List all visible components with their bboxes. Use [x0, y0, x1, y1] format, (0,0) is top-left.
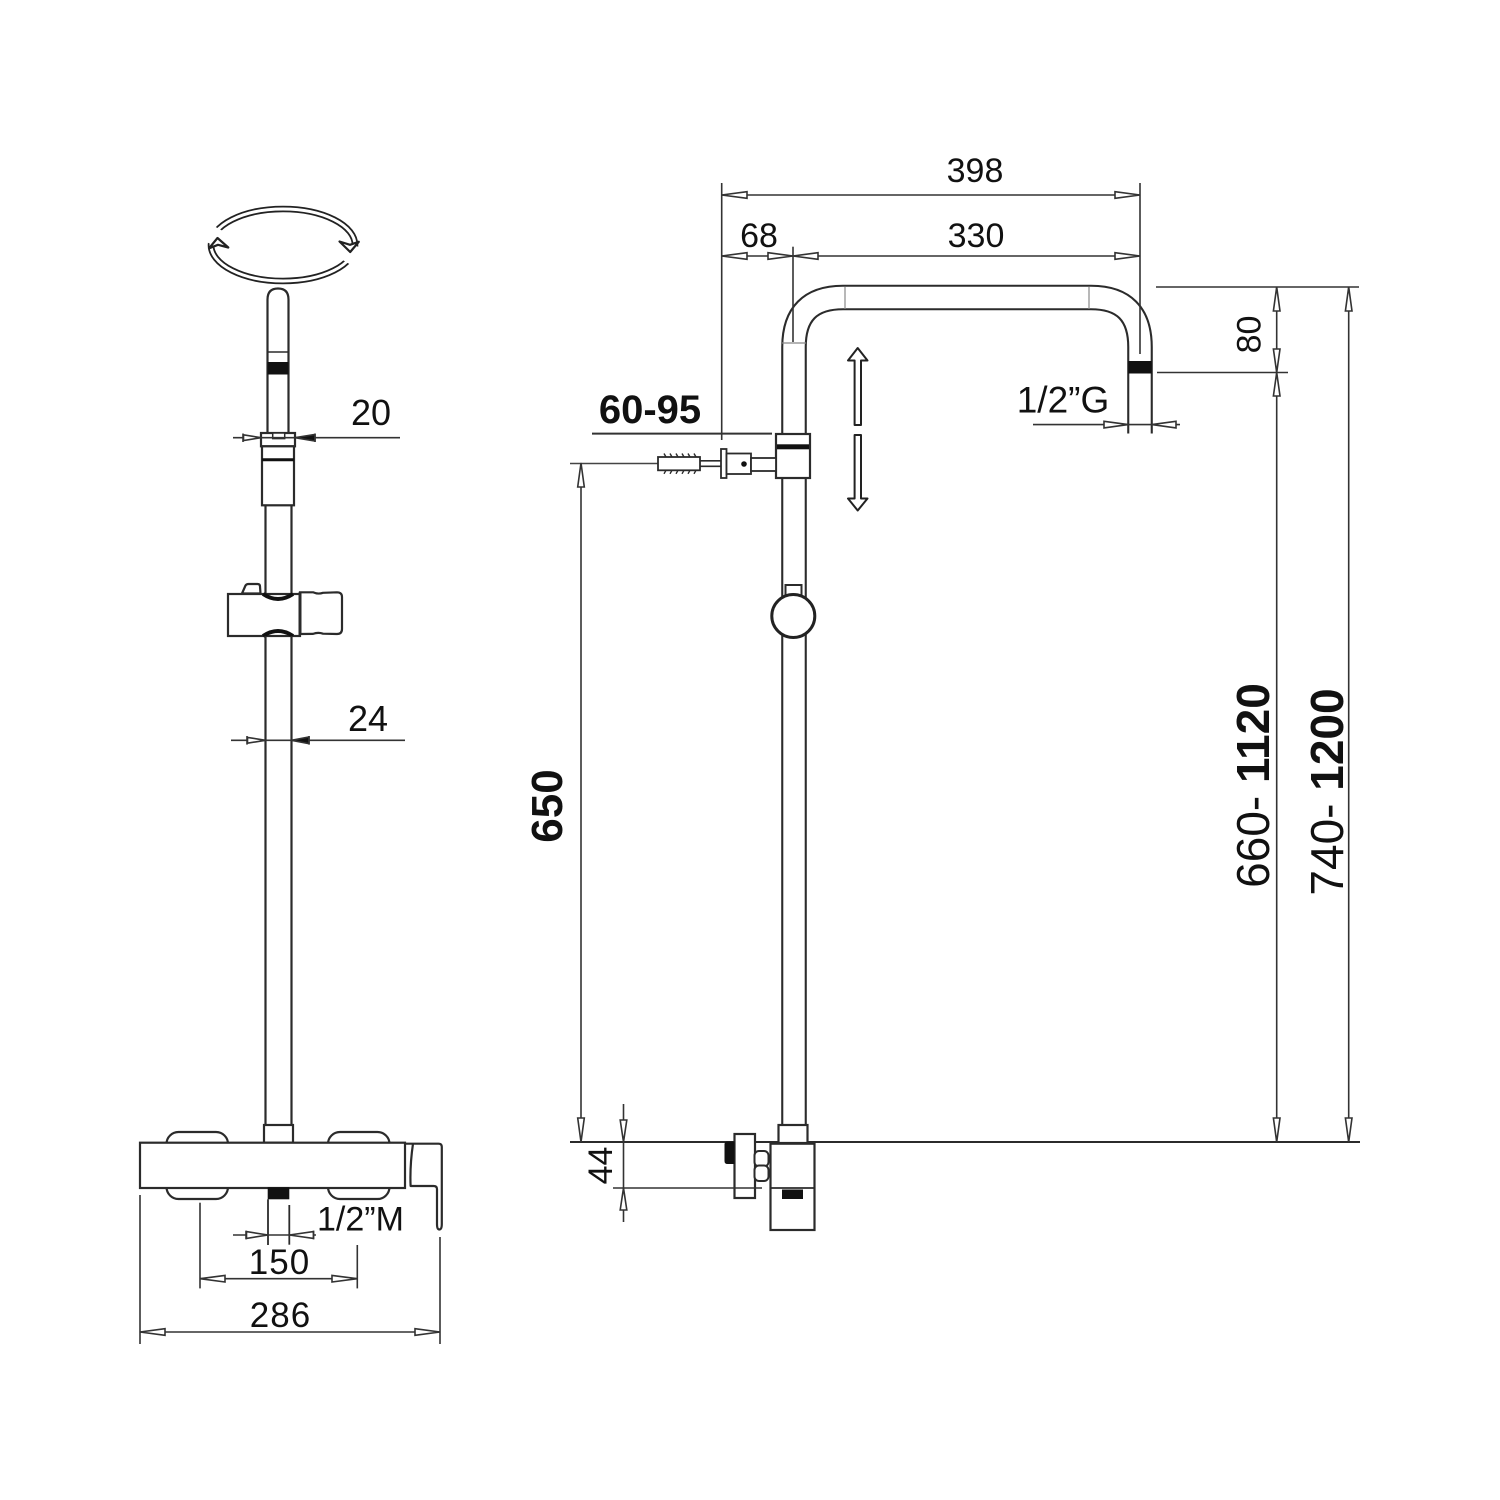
- svg-text:80: 80: [1231, 316, 1269, 354]
- svg-text:286: 286: [250, 1296, 311, 1335]
- svg-text:60-95: 60-95: [599, 388, 701, 432]
- svg-text:44: 44: [582, 1147, 620, 1185]
- svg-text:398: 398: [947, 152, 1004, 190]
- svg-text:68: 68: [740, 217, 778, 255]
- svg-text:20: 20: [351, 392, 391, 433]
- svg-text:650: 650: [523, 769, 572, 842]
- svg-text:1/2”M: 1/2”M: [317, 1201, 404, 1239]
- svg-text:1/2”G: 1/2”G: [1017, 380, 1110, 421]
- svg-text:330: 330: [948, 217, 1005, 255]
- svg-text:660- 1120: 660- 1120: [1227, 683, 1279, 888]
- svg-text:740- 1200: 740- 1200: [1301, 688, 1353, 895]
- svg-text:24: 24: [348, 698, 388, 739]
- svg-text:150: 150: [249, 1243, 310, 1282]
